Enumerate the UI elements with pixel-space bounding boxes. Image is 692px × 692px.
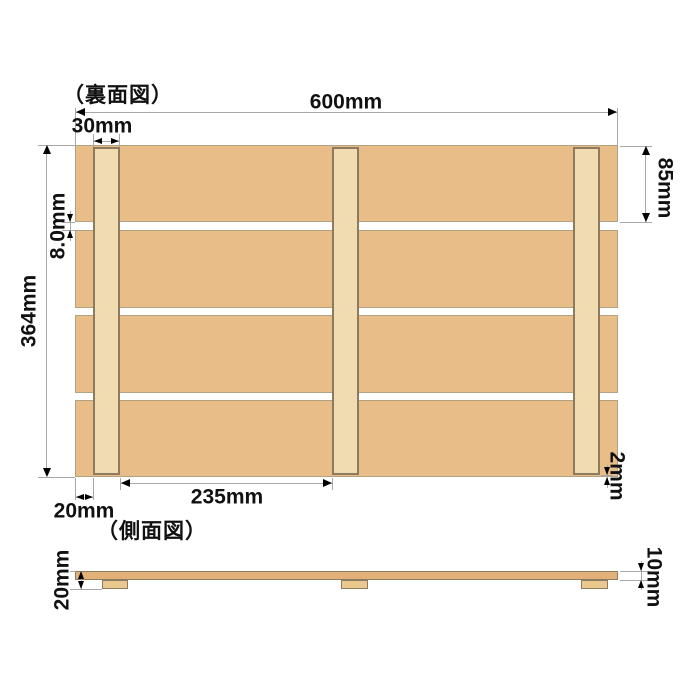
dim-label-beam-end-inset: 2mm (607, 451, 628, 500)
dim-30-arrow-right (111, 138, 119, 144)
dim-label-beam-width: 30mm (72, 116, 133, 137)
back-view-title: （裏面図） (63, 79, 173, 109)
dim-side20-arrow-down (78, 581, 84, 589)
side-view-title: （側面図） (97, 515, 207, 545)
back-crossbeam-right (573, 147, 600, 475)
dim-600-ext-right (617, 108, 618, 145)
back-crossbeam-middle (332, 147, 359, 475)
side-slat-profile (75, 571, 618, 580)
dim-600-arrow-right (608, 108, 617, 116)
dim-235-arrow-right (323, 479, 332, 487)
back-crossbeam-left (93, 147, 120, 475)
dim-label-total-width: 600mm (310, 92, 382, 113)
wood-board-dimension-diagram: （裏面図） 600mm 30mm 364mm 8.0mm 85mm 2mm (0, 0, 692, 692)
dim-85-arrow-top (642, 146, 650, 155)
dim-30-arrow-left (94, 138, 102, 144)
side-crossbeam-middle (341, 580, 368, 589)
dim-label-beam-spacing: 235mm (191, 487, 263, 508)
dim-235-ext-right (332, 478, 333, 490)
dim-235-arrow-left (121, 479, 130, 487)
dim-364-arrow-top (43, 145, 51, 154)
dim-label-slat-thickness: 10mm (644, 547, 665, 608)
dim-label-total-height: 364mm (19, 275, 40, 347)
dim-364-ext-bottom (38, 477, 75, 478)
dim-label-slat-gap: 8.0mm (48, 193, 69, 260)
dim-label-total-thickness: 20mm (52, 550, 73, 611)
dim-side20-tick-bottom (70, 589, 102, 590)
dim-side20-arrow-up (78, 571, 84, 579)
dim-label-slat-height: 85mm (655, 158, 676, 219)
dim-85-arrow-bottom (642, 213, 650, 222)
dim-235-line (121, 483, 332, 484)
side-crossbeam-left (102, 580, 128, 589)
dim-85-line (645, 146, 646, 222)
dim-20-ext-right (93, 478, 94, 500)
dim-85-ext-bottom (620, 222, 652, 223)
dim-364-arrow-bottom (43, 468, 51, 477)
side-crossbeam-right (581, 580, 608, 589)
